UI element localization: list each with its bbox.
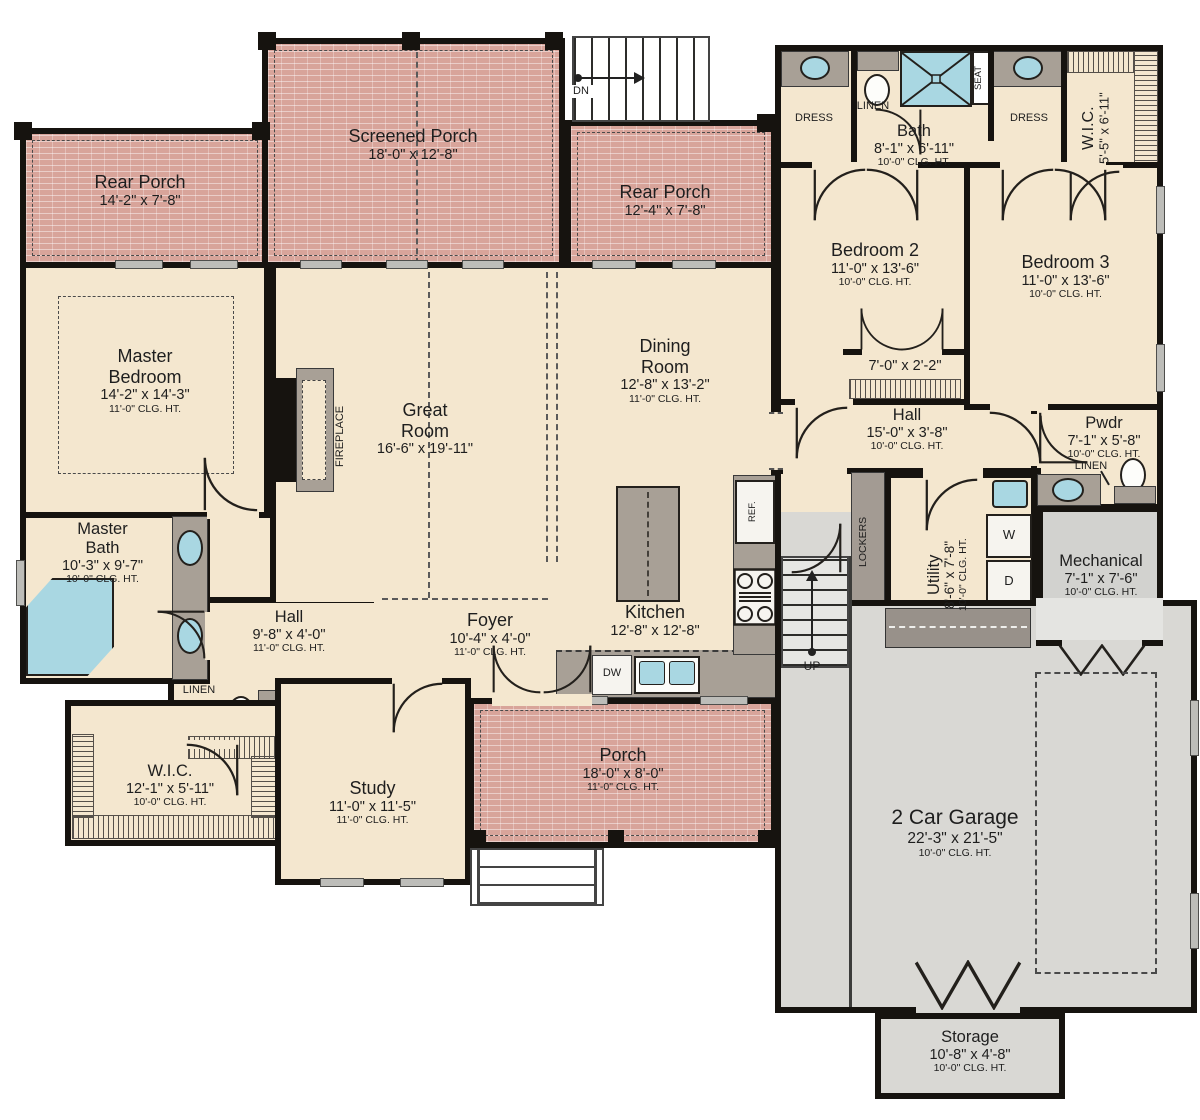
fireplace-box	[264, 378, 296, 482]
room-name: Bedroom 2	[790, 240, 960, 261]
dishwasher-label: DW	[592, 667, 632, 680]
room-clg: 11'-0" CLG. HT.	[538, 782, 708, 794]
room-dims: 8'-1" x 6'-11"	[855, 141, 973, 158]
room-dims: 8'-6" x 7'-8"	[943, 495, 958, 655]
room-clg: 10'-0" CLG. HT.	[1045, 587, 1157, 599]
room-clg: 10'-0" CLG. HT.	[840, 848, 1070, 860]
garage-divider-line	[849, 556, 852, 1007]
room-name: 2 Car Garage	[840, 806, 1070, 830]
room-name: Storage	[890, 1028, 1050, 1047]
floor-plan: DN FIREPLACE LINEN REF.	[0, 0, 1200, 1120]
sink-basin	[639, 661, 665, 685]
foyer-opening-dashed	[382, 598, 548, 600]
room-name: Mechanical	[1045, 552, 1157, 571]
room-dims: 22'-3" x 21'-5"	[840, 830, 1070, 848]
stairs-up-label: UP	[794, 660, 830, 674]
sink	[1052, 478, 1084, 502]
room-name: Utility	[925, 495, 943, 655]
room-dims: 15'-0" x 3'-8"	[828, 425, 986, 442]
room-clg: 11'-0" CLG. HT.	[595, 394, 735, 406]
porch-post	[608, 830, 624, 846]
door-arc	[813, 168, 867, 222]
room-dims: 18'-0" x 8'-0"	[538, 766, 708, 783]
door-arc	[865, 168, 919, 222]
shower	[26, 578, 114, 676]
room-dims: 10'-4" x 4'-0"	[425, 631, 555, 648]
room-dims: 7'-0" x 2'-2"	[846, 358, 964, 375]
room-label-master-bedroom: Master Bedroom 14'-2" x 14'-3" 11'-0" CL…	[55, 346, 235, 416]
room-clg: 10'-0" CLG. HT.	[35, 574, 170, 586]
room-clg: 10'-0" CLG. HT.	[978, 289, 1153, 301]
room-dims: 18'-0" x 12'-8"	[308, 147, 518, 164]
room-name: Porch	[538, 745, 708, 766]
wall	[1061, 51, 1067, 169]
linen-label: LINEN	[168, 684, 230, 697]
room-name: Pwdr	[1048, 414, 1160, 433]
room-name: Rear Porch	[570, 182, 760, 203]
window	[1156, 344, 1165, 392]
window	[462, 260, 504, 269]
room-name: W.I.C.	[1080, 78, 1098, 178]
stairs-down-label: DN	[566, 85, 596, 98]
door-opening	[795, 399, 853, 406]
door-arc	[900, 307, 944, 351]
room-name: Rear Porch	[40, 172, 240, 193]
room-name: Hall	[228, 608, 350, 627]
room-dims: 14'-2" x 7'-8"	[40, 193, 240, 210]
linen-shelf	[857, 51, 899, 71]
window	[300, 260, 342, 269]
dining-top-wall	[548, 262, 777, 268]
closet-shelving	[1134, 51, 1158, 167]
garage-entry-landing	[1036, 598, 1163, 644]
front-steps-rail	[470, 848, 479, 906]
room-dims: 11'-0" x 13'-6"	[790, 261, 960, 278]
window	[16, 560, 25, 606]
door-arc	[203, 456, 259, 512]
room-label-wic-upper: W.I.C. 5'-5" x 6'-11"	[1080, 78, 1112, 178]
window	[115, 260, 163, 269]
porch-post	[545, 32, 563, 50]
room-label-bedroom3: Bedroom 3 11'-0" x 13'-6" 10'-0" CLG. HT…	[978, 252, 1153, 301]
room-name: Foyer	[425, 610, 555, 631]
room-dims: 12'-8" x 12'-8"	[580, 623, 730, 640]
stairs-down-arrow	[578, 77, 636, 79]
porch-post	[252, 122, 270, 140]
door-opening	[205, 612, 214, 660]
room-clg: 10'-0" CLG. HT.	[890, 1063, 1050, 1075]
room-dims: 14'-2" x 14'-3"	[55, 387, 235, 404]
room-dims: 11'-0" x 13'-6"	[978, 273, 1153, 290]
seat-label: SEAT	[974, 55, 984, 101]
door-arc	[860, 307, 904, 351]
refrigerator-label: REF.	[748, 486, 758, 538]
room-dims: 12'-4" x 7'-8"	[570, 203, 760, 220]
room-name: Master Bedroom	[90, 346, 200, 387]
porch-post	[258, 32, 276, 50]
stairs-down-dot	[574, 74, 582, 82]
room-label-mechanical: Mechanical 7'-1" x 7'-6" 10'-0" CLG. HT.	[1045, 552, 1157, 599]
door-arc	[988, 411, 1042, 465]
window	[400, 878, 444, 887]
ceiling-break-line	[546, 272, 548, 562]
fireplace-label: FIREPLACE	[334, 388, 346, 484]
front-steps	[478, 848, 596, 906]
shower-x-lines	[900, 51, 972, 107]
dress-left-label: DRESS	[778, 112, 850, 125]
lockers-label: LOCKERS	[858, 482, 870, 602]
room-dims: 12'-8" x 13'-2"	[595, 377, 735, 394]
room-clg: 11'-0" CLG. HT.	[228, 643, 350, 655]
room-name: Kitchen	[580, 602, 730, 623]
room-name: Master Bath	[63, 520, 143, 558]
window	[386, 260, 428, 269]
window	[1190, 893, 1199, 949]
washer-label: W	[986, 528, 1032, 543]
room-dims: 10'-3" x 9'-7"	[35, 558, 170, 575]
room-label-bath: Bath 8'-1" x 6'-11" 10'-0" CLG. HT.	[855, 122, 973, 169]
porch-post	[14, 122, 32, 140]
sink	[177, 530, 203, 566]
room-dims: 11'-0" x 11'-5"	[295, 799, 450, 816]
closet-shelving	[1067, 51, 1135, 73]
room-label-bedroom2: Bedroom 2 11'-0" x 13'-6" 10'-0" CLG. HT…	[790, 240, 960, 289]
dress-right-label: DRESS	[993, 112, 1065, 125]
opening-to-stairs	[783, 468, 847, 475]
room-dims: 16'-6" x 19'-11"	[350, 441, 500, 458]
door-arc	[156, 610, 206, 660]
room-dims: 7'-1" x 5'-8"	[1048, 433, 1160, 450]
room-dims: 12'-1" x 5'-11"	[100, 781, 240, 798]
room-label-screened-porch: Screened Porch 18'-0" x 12'-8"	[308, 126, 518, 163]
room-label-kitchen: Kitchen 12'-8" x 12'-8"	[580, 602, 730, 639]
linen-shelf	[1114, 486, 1156, 504]
room-dims: 9'-8" x 4'-0"	[228, 627, 350, 644]
room-clg: 10'-0" CLG. HT.	[1048, 449, 1160, 461]
stairs-down-arrowhead	[634, 72, 645, 84]
window	[592, 260, 636, 269]
dryer-label: D	[986, 574, 1032, 589]
room-clg: 10'-0" CLG. HT.	[790, 277, 960, 289]
door-opening	[990, 404, 1048, 411]
porch-post	[402, 32, 420, 50]
room-clg: 10'-0" CLG. HT.	[828, 441, 986, 453]
room-label-great-room: Great Room 16'-6" x 19'-11"	[350, 400, 500, 458]
window	[320, 878, 364, 887]
room-name: Dining Room	[625, 336, 705, 377]
fireplace-firebox	[302, 380, 326, 480]
window	[1156, 186, 1165, 234]
room-dims: 7'-1" x 7'-6"	[1045, 571, 1157, 588]
room-name: Bedroom 3	[978, 252, 1153, 273]
room-clg: 10'-0" CLG. HT.	[855, 157, 973, 169]
room-label-foyer: Foyer 10'-4" x 4'-0" 11'-0" CLG. HT.	[425, 610, 555, 659]
range-cooktop	[733, 568, 777, 626]
closet-shelving	[251, 756, 277, 818]
room-label-hall-master: Hall 9'-8" x 4'-0" 11'-0" CLG. HT.	[228, 608, 350, 655]
room-clg: 11'-0" CLG. HT.	[55, 404, 235, 416]
room-label-utility: Utility 8'-6" x 7'-8" 10'-0" CLG. HT.	[925, 495, 970, 655]
window	[1190, 700, 1199, 756]
room-clg: 11'-0" CLG. HT.	[425, 647, 555, 659]
room-name: Study	[295, 778, 450, 799]
window	[672, 260, 716, 269]
room-dims: 10'-8" x 4'-8"	[890, 1047, 1050, 1064]
room-label-pwdr: Pwdr 7'-1" x 5'-8" 10'-0" CLG. HT.	[1048, 414, 1160, 461]
room-name: Bath	[855, 122, 973, 141]
cased-opening	[769, 412, 783, 470]
room-name: W.I.C.	[100, 762, 240, 781]
utility-sink	[992, 480, 1028, 508]
room-name: Screened Porch	[348, 126, 478, 147]
room-label-garage: 2 Car Garage 22'-3" x 21'-5" 10'-0" CLG.…	[840, 806, 1070, 860]
room-label-dining: Dining Room 12'-8" x 13'-2" 11'-0" CLG. …	[595, 336, 735, 406]
closet-shelving	[72, 815, 277, 839]
porch-post	[757, 114, 775, 132]
room-label-wic-master: W.I.C. 12'-1" x 5'-11" 10'-0" CLG. HT.	[100, 762, 240, 809]
door-arc	[790, 522, 842, 574]
double-door-marks	[914, 960, 1022, 1010]
door-arc	[1001, 168, 1055, 222]
room-clg: 10'-0" CLG. HT.	[958, 495, 970, 655]
room-label-master-bath: Master Bath 10'-3" x 9'-7" 10'-0" CLG. H…	[35, 520, 170, 586]
closet-between-label: 7'-0" x 2'-2"	[846, 358, 964, 375]
closet-shelving	[849, 379, 961, 399]
door-arc	[392, 682, 444, 734]
closet-shelving	[72, 734, 94, 818]
door-opening	[492, 694, 592, 706]
linen-bath-label: LINEN	[843, 100, 903, 113]
bedroom-divider-wall	[964, 165, 970, 405]
room-label-rear-porch-left: Rear Porch 14'-2" x 7'-8"	[40, 172, 240, 209]
stairs-up-dot	[808, 648, 816, 656]
room-label-rear-porch-right: Rear Porch 12'-4" x 7'-8"	[570, 182, 760, 219]
kitchen-island-line	[647, 492, 649, 596]
room-label-hall-bedrooms: Hall 15'-0" x 3'-8" 10'-0" CLG. HT.	[828, 406, 986, 453]
room-name: Great Room	[385, 400, 465, 441]
room-label-front-porch: Porch 18'-0" x 8'-0" 11'-0" CLG. HT.	[538, 745, 708, 794]
sink-basin	[669, 661, 695, 685]
stairs-up-arrow	[811, 578, 813, 652]
room-clg: 11'-0" CLG. HT.	[295, 815, 450, 827]
porch-post	[758, 830, 774, 846]
room-dims: 5'-5" x 6'-11"	[1098, 78, 1112, 178]
wall	[988, 51, 994, 141]
room-clg: 10'-0" CLG. HT.	[100, 797, 240, 809]
room-name: Hall	[828, 406, 986, 425]
front-steps-rail	[595, 848, 604, 906]
window	[700, 696, 748, 705]
room-label-storage: Storage 10'-8" x 4'-8" 10'-0" CLG. HT.	[890, 1028, 1050, 1075]
room-label-study: Study 11'-0" x 11'-5" 11'-0" CLG. HT.	[295, 778, 450, 827]
sink	[1013, 56, 1043, 80]
sink	[800, 56, 830, 80]
window	[190, 260, 238, 269]
porch-post	[470, 830, 486, 846]
ceiling-break-line	[556, 272, 558, 562]
